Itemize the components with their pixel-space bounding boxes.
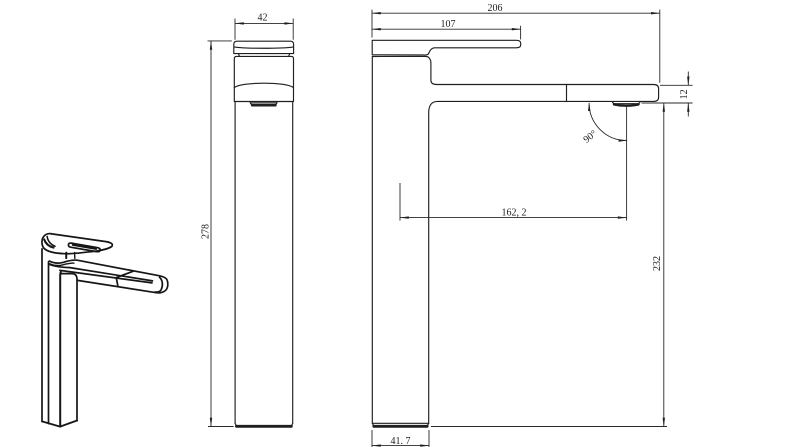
svg-text:42: 42 (258, 13, 268, 24)
svg-text:12: 12 (679, 89, 690, 99)
svg-text:206: 206 (488, 3, 503, 14)
svg-text:162, 2: 162, 2 (502, 208, 527, 219)
svg-text:232: 232 (652, 256, 663, 271)
svg-text:41. 7: 41. 7 (391, 436, 411, 447)
svg-text:107: 107 (441, 19, 456, 30)
svg-text:278: 278 (200, 224, 211, 239)
